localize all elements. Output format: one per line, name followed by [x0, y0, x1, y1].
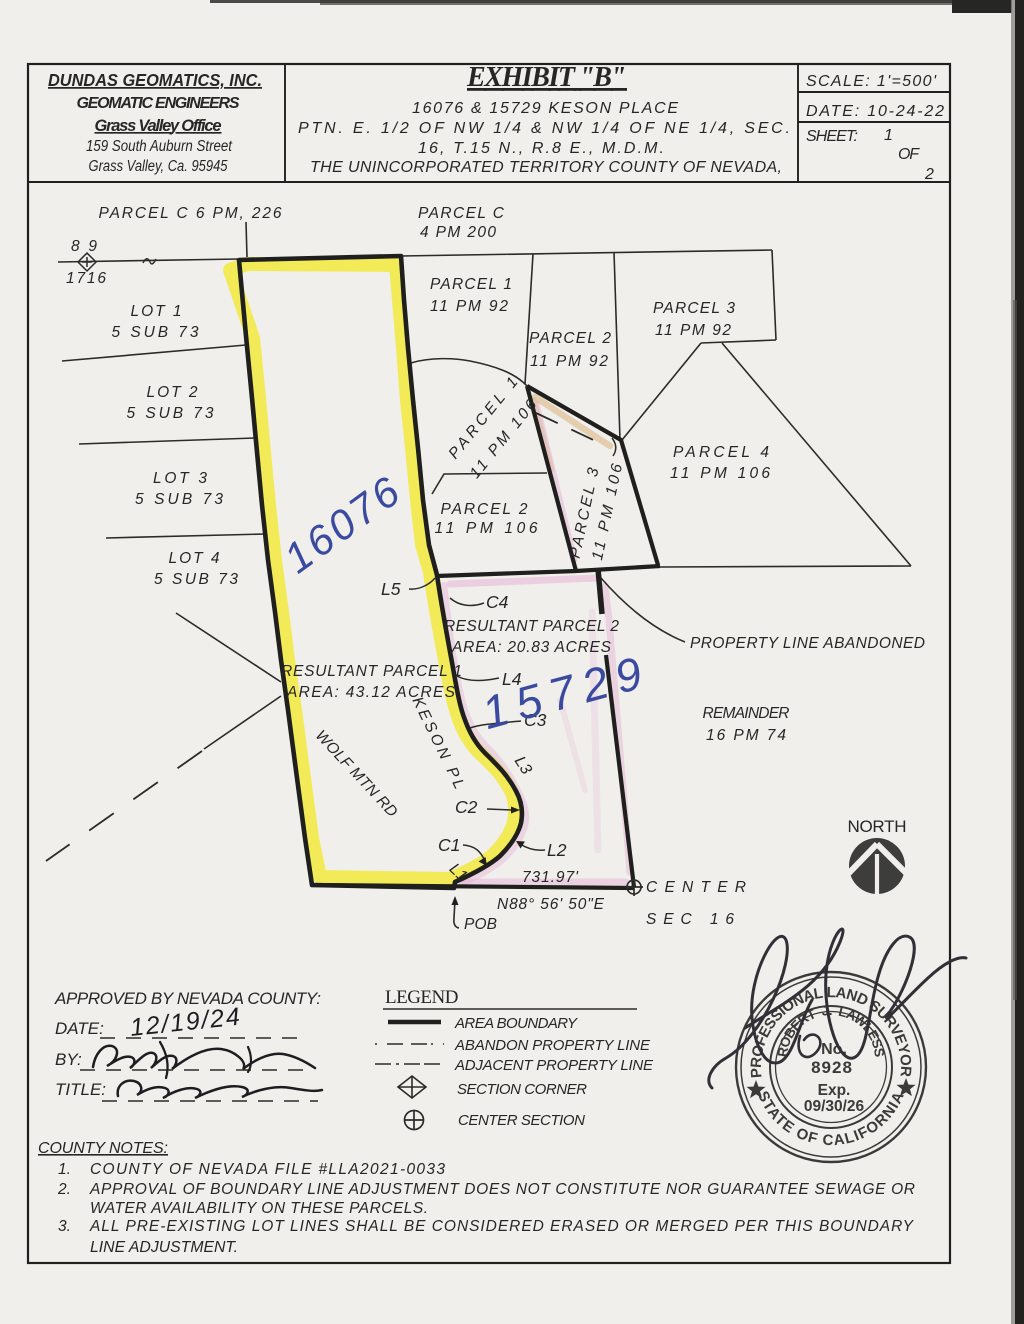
- svg-text:16 PM 74: 16 PM 74: [706, 727, 786, 744]
- svg-text:C4: C4: [486, 592, 509, 612]
- svg-text:SECTION CORNER: SECTION CORNER: [457, 1081, 587, 1098]
- svg-text:AREA BOUNDARY: AREA BOUNDARY: [454, 1015, 578, 1032]
- svg-text:ADJACENT PROPERTY LINE: ADJACENT PROPERTY LINE: [454, 1057, 654, 1074]
- svg-text:RESULTANT PARCEL 1: RESULTANT PARCEL 1: [281, 663, 462, 680]
- svg-text:1716: 1716: [66, 270, 106, 287]
- svg-text:DATE:: DATE:: [55, 1019, 104, 1038]
- svg-text:PARCEL C 6 PM, 226: PARCEL C 6 PM, 226: [99, 205, 282, 222]
- svg-text:PARCEL 2: PARCEL 2: [529, 330, 611, 347]
- svg-text:BY:: BY:: [55, 1050, 82, 1069]
- svg-text:OF: OF: [898, 146, 920, 163]
- svg-text:16076 & 15729 KESON PLACE: 16076 & 15729 KESON PLACE: [412, 100, 678, 117]
- svg-text:REMAINDER: REMAINDER: [703, 705, 790, 722]
- svg-text:RESULTANT PARCEL 2: RESULTANT PARCEL 2: [444, 618, 619, 635]
- svg-text:4 PM 200: 4 PM 200: [420, 224, 496, 241]
- svg-text:CENTER SECTION: CENTER SECTION: [458, 1112, 585, 1129]
- svg-text:1: 1: [884, 127, 893, 144]
- svg-text:11 PM 106: 11 PM 106: [670, 465, 770, 482]
- svg-text:2: 2: [924, 166, 934, 183]
- svg-text:LOT 4: LOT 4: [169, 550, 220, 567]
- svg-text:PARCEL 1: PARCEL 1: [430, 276, 512, 293]
- svg-text:8928: 8928: [811, 1058, 853, 1077]
- svg-text:11 PM 92: 11 PM 92: [655, 322, 731, 339]
- svg-text:L2: L2: [547, 840, 567, 860]
- svg-text:16, T.15 N., R.8 E., M.D.M.: 16, T.15 N., R.8 E., M.D.M.: [418, 140, 664, 157]
- svg-text:PARCEL 3: PARCEL 3: [653, 300, 735, 317]
- svg-text:LOT 1: LOT 1: [131, 303, 182, 320]
- svg-text:L5: L5: [381, 579, 401, 599]
- svg-text:C2: C2: [455, 797, 478, 817]
- svg-text:LEGEND: LEGEND: [385, 987, 460, 1008]
- svg-text:Grass Valley Office: Grass Valley Office: [95, 117, 222, 135]
- svg-text:09/30/26: 09/30/26: [804, 1098, 865, 1115]
- svg-text:Exp.: Exp.: [818, 1082, 851, 1099]
- svg-text:159 South Auburn Street: 159 South Auburn Street: [86, 138, 233, 155]
- svg-text:3.: 3.: [58, 1218, 71, 1235]
- svg-text:TITLE:: TITLE:: [55, 1080, 106, 1099]
- svg-text:LINE ADJUSTMENT.: LINE ADJUSTMENT.: [90, 1239, 238, 1256]
- svg-text:NORTH: NORTH: [848, 817, 909, 836]
- svg-text:PARCEL 2: PARCEL 2: [441, 501, 528, 518]
- svg-text:GEOMATIC ENGINEERS: GEOMATIC ENGINEERS: [77, 95, 240, 112]
- svg-text:THE UNINCORPORATED TERRITORY C: THE UNINCORPORATED TERRITORY COUNTY OF N…: [310, 159, 782, 176]
- svg-text:1.: 1.: [58, 1161, 71, 1178]
- svg-text:AREA: 43.12 ACRES: AREA: 43.12 ACRES: [286, 684, 456, 701]
- svg-text:PROPERTY LINE ABANDONED: PROPERTY LINE ABANDONED: [690, 635, 925, 652]
- svg-text:2.: 2.: [57, 1181, 71, 1198]
- svg-text:ALL PRE-EXISTING LOT LINES SHA: ALL PRE-EXISTING LOT LINES SHALL BE CONS…: [89, 1218, 915, 1235]
- svg-text:APPROVED BY NEVADA COUNTY:: APPROVED BY NEVADA COUNTY:: [54, 989, 321, 1008]
- svg-text:Grass Valley, Ca. 95945: Grass Valley, Ca. 95945: [89, 158, 228, 175]
- svg-text:PARCEL 4: PARCEL 4: [673, 444, 769, 461]
- svg-text:11 PM 106: 11 PM 106: [435, 520, 538, 537]
- svg-text:SHEET:: SHEET:: [806, 128, 858, 145]
- svg-text:731.97': 731.97': [522, 869, 579, 886]
- svg-text:11 PM 92: 11 PM 92: [430, 298, 508, 315]
- svg-text:LOT 3: LOT 3: [153, 470, 207, 487]
- svg-text:8 9: 8 9: [71, 238, 97, 255]
- svg-text:POB: POB: [464, 916, 497, 933]
- svg-text:SCALE: 1'=500': SCALE: 1'=500': [806, 73, 937, 90]
- svg-text:11 PM 92: 11 PM 92: [530, 353, 608, 370]
- svg-text:C1: C1: [438, 835, 460, 855]
- svg-text:N88° 56' 50"E: N88° 56' 50"E: [497, 896, 605, 913]
- svg-text:LOT 2: LOT 2: [147, 384, 198, 401]
- svg-text:ABANDON PROPERTY LINE: ABANDON PROPERTY LINE: [454, 1037, 651, 1054]
- svg-text:AREA: 20.83 ACRES: AREA: 20.83 ACRES: [451, 639, 612, 656]
- svg-text:DUNDAS GEOMATICS, INC.: DUNDAS GEOMATICS, INC.: [48, 70, 262, 90]
- svg-text:COUNTY NOTES:: COUNTY NOTES:: [38, 1140, 168, 1157]
- svg-text:EXHIBIT "B": EXHIBIT "B": [466, 62, 627, 93]
- svg-text:APPROVAL OF BOUNDARY LINE ADJU: APPROVAL OF BOUNDARY LINE ADJUSTMENT DOE…: [89, 1181, 915, 1198]
- svg-text:WATER AVAILABILITY ON THESE PA: WATER AVAILABILITY ON THESE PARCELS.: [90, 1200, 428, 1217]
